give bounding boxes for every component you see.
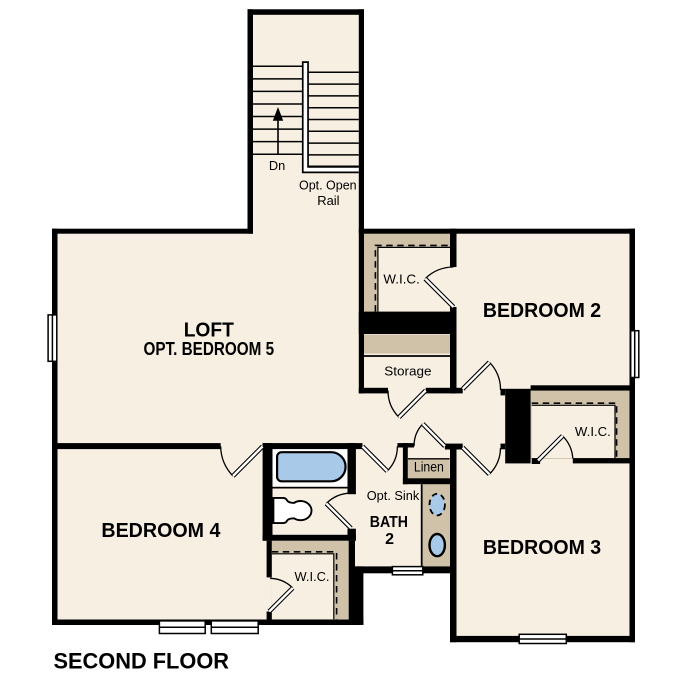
svg-text:BEDROOM 2: BEDROOM 2 xyxy=(483,300,601,322)
svg-text:Linen: Linen xyxy=(414,460,444,475)
svg-text:Rail: Rail xyxy=(317,193,339,208)
svg-text:Storage: Storage xyxy=(384,364,431,379)
svg-text:BATH: BATH xyxy=(370,514,408,531)
svg-text:2: 2 xyxy=(385,531,394,548)
svg-text:Dn: Dn xyxy=(269,158,285,173)
svg-text:W.I.C.: W.I.C. xyxy=(295,569,330,584)
svg-text:BEDROOM 3: BEDROOM 3 xyxy=(483,537,601,559)
svg-text:BEDROOM 4: BEDROOM 4 xyxy=(101,520,221,542)
svg-text:W.I.C.: W.I.C. xyxy=(383,272,419,287)
svg-text:W.I.C.: W.I.C. xyxy=(575,424,611,439)
svg-text:OPT. BEDROOM 5: OPT. BEDROOM 5 xyxy=(144,339,275,359)
svg-text:Opt. Open: Opt. Open xyxy=(299,178,357,193)
svg-text:SECOND FLOOR: SECOND FLOOR xyxy=(54,649,230,674)
svg-text:Opt. Sink: Opt. Sink xyxy=(367,488,420,503)
